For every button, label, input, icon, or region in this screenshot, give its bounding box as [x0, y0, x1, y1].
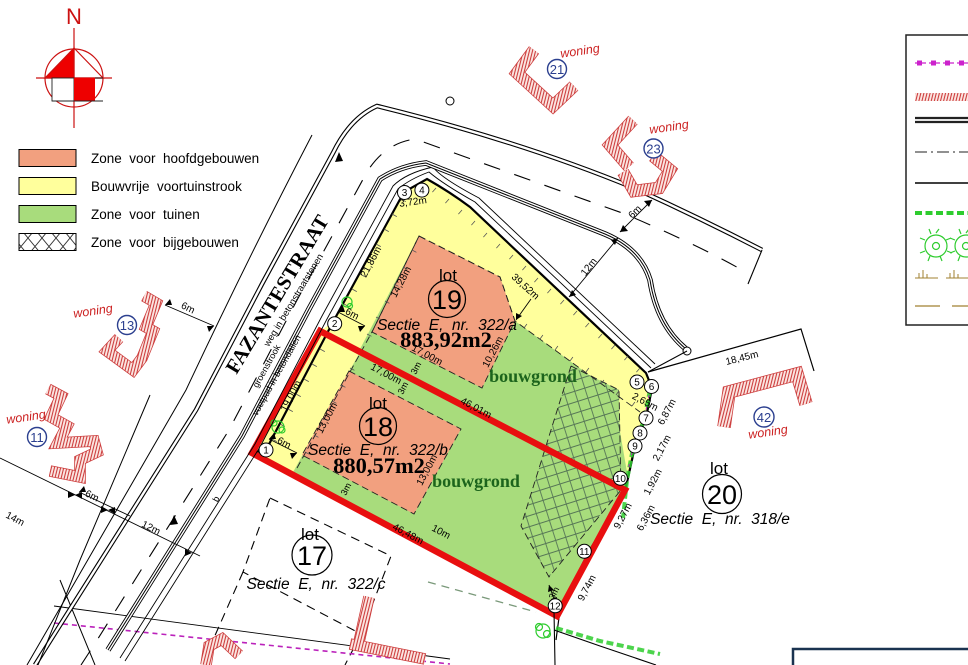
- svg-text:19: 19: [432, 285, 462, 315]
- svg-text:Sectie E, nr. 318/e: Sectie E, nr. 318/e: [650, 511, 790, 528]
- svg-text:21: 21: [550, 62, 564, 77]
- svg-text:10: 10: [615, 474, 627, 485]
- svg-text:23: 23: [646, 142, 660, 157]
- svg-text:bouwgrond: bouwgrond: [489, 366, 577, 386]
- svg-text:880,57m2: 880,57m2: [333, 453, 425, 478]
- svg-text:9: 9: [632, 442, 638, 453]
- svg-text:5: 5: [634, 378, 640, 389]
- svg-text:Bouwvrije voortuinstrook: Bouwvrije voortuinstrook: [91, 179, 242, 194]
- svg-text:11: 11: [30, 430, 44, 445]
- svg-text:1: 1: [263, 446, 269, 457]
- svg-text:2: 2: [332, 319, 338, 330]
- svg-text:17: 17: [297, 541, 327, 571]
- svg-text:bouwgrond: bouwgrond: [432, 471, 520, 491]
- svg-text:6: 6: [649, 382, 655, 393]
- svg-text:7: 7: [643, 414, 649, 425]
- svg-text:18: 18: [363, 412, 393, 442]
- svg-text:N: N: [66, 4, 82, 29]
- svg-text:42: 42: [757, 410, 771, 425]
- svg-text:8: 8: [637, 429, 643, 440]
- svg-text:Zone voor bijgebouwen: Zone voor bijgebouwen: [91, 235, 239, 250]
- svg-text:11: 11: [579, 547, 590, 558]
- svg-text:12: 12: [550, 601, 562, 612]
- svg-text:20: 20: [707, 480, 737, 510]
- svg-text:lot: lot: [369, 394, 387, 413]
- svg-text:Sectie E, nr. 322/c: Sectie E, nr. 322/c: [247, 576, 386, 593]
- svg-text:13: 13: [120, 318, 134, 333]
- svg-text:Zone voor tuinen: Zone voor tuinen: [91, 207, 200, 222]
- svg-text:Zone voor hoofdgebouwen: Zone voor hoofdgebouwen: [91, 151, 259, 166]
